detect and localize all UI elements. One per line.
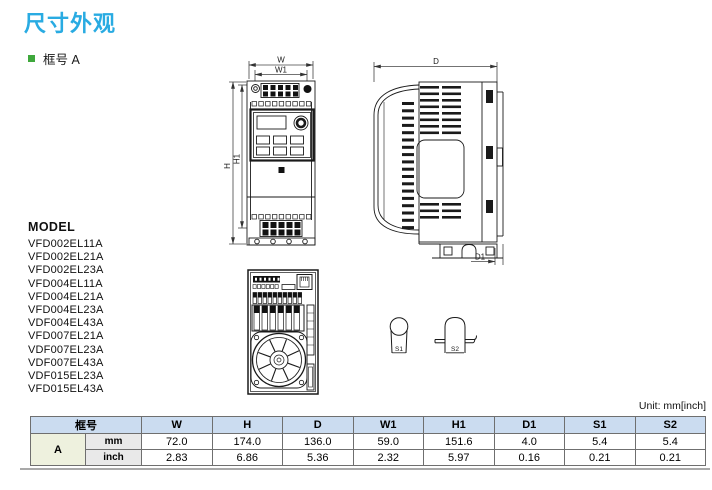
- dim-label-d: D: [433, 57, 439, 66]
- side-dimension-lines: [374, 62, 503, 265]
- dim-label-d1: D1: [475, 253, 486, 262]
- unit-cell-inch: inch: [86, 450, 142, 466]
- front-view-drawing: W W1 H H1: [190, 52, 360, 258]
- uncovered-unit-body: [248, 270, 318, 394]
- value-cell: 6.86: [212, 450, 283, 466]
- model-list-item: VDF004EL43A: [28, 317, 104, 330]
- dimensions-table: 框号 W H D W1 H1 D1 S1 S2 A mm 72.0 174.0 …: [30, 416, 706, 466]
- dim-label-w1: W1: [275, 66, 288, 75]
- model-list: MODEL VFD002EL11A VFD002EL21A VFD002EL23…: [28, 220, 104, 396]
- model-list-item: VFD004EL11A: [28, 278, 104, 291]
- model-list-item: VDF015EL23A: [28, 370, 104, 383]
- side-view-drawing: D D1: [362, 52, 512, 268]
- value-cell: 151.6: [424, 434, 495, 450]
- side-vent-slats: [402, 86, 493, 229]
- unit-cell-mm: mm: [86, 434, 142, 450]
- model-list-item: VFD002EL21A: [28, 251, 104, 264]
- model-list-item: VFD007EL21A: [28, 330, 104, 343]
- value-cell: 72.0: [142, 434, 213, 450]
- dim-label-h: H: [223, 163, 232, 169]
- value-cell: 4.0: [494, 434, 565, 450]
- model-list-heading: MODEL: [28, 220, 104, 234]
- col-header-h: H: [212, 417, 283, 434]
- value-cell: 136.0: [283, 434, 354, 450]
- value-cell: 0.21: [635, 450, 706, 466]
- model-list-item: VDF007EL43A: [28, 357, 104, 370]
- col-header-d: D: [283, 417, 354, 434]
- col-header-w: W: [142, 417, 213, 434]
- col-header-s1: S1: [565, 417, 636, 434]
- screw-label-s2: S2: [451, 346, 459, 353]
- value-cell: 2.32: [353, 450, 424, 466]
- table-row-mm: A mm 72.0 174.0 136.0 59.0 151.6 4.0 5.4…: [31, 434, 706, 450]
- col-header-frame: 框号: [31, 417, 142, 434]
- model-list-item: VDF007EL23A: [28, 344, 104, 357]
- value-cell: 0.16: [494, 450, 565, 466]
- table-bottom-rule: [20, 468, 710, 470]
- value-cell: 5.4: [565, 434, 636, 450]
- col-header-d1: D1: [494, 417, 565, 434]
- frame-section-label: 框号 A: [43, 49, 80, 68]
- model-list-item: VFD015EL43A: [28, 383, 104, 396]
- col-header-w1: W1: [353, 417, 424, 434]
- model-list-item: VFD002EL11A: [28, 238, 104, 251]
- value-cell: 174.0: [212, 434, 283, 450]
- side-unit-body: [374, 82, 503, 258]
- table-header-row: 框号 W H D W1 H1 D1 S1 S2: [31, 417, 706, 434]
- dim-label-w: W: [277, 56, 285, 65]
- model-list-item: VFD002EL23A: [28, 264, 104, 277]
- table-row-inch: inch 2.83 6.86 5.36 2.32 5.97 0.16 0.21 …: [31, 450, 706, 466]
- value-cell: 5.97: [424, 450, 495, 466]
- model-list-item: VFD004EL21A: [28, 291, 104, 304]
- screw-detail-drawing: S1 S2: [375, 308, 490, 360]
- uncovered-view-drawing: [246, 268, 324, 398]
- value-cell: 2.83: [142, 450, 213, 466]
- frame-section-heading: 框号 A: [28, 49, 80, 68]
- page-title: 尺寸外观: [24, 6, 116, 38]
- frame-cell: A: [31, 434, 86, 466]
- unit-note: Unit: mm[inch]: [500, 400, 706, 412]
- col-header-s2: S2: [635, 417, 706, 434]
- value-cell: 5.4: [635, 434, 706, 450]
- screw-label-s1: S1: [395, 346, 403, 353]
- value-cell: 0.21: [565, 450, 636, 466]
- model-list-item: VFD004EL23A: [28, 304, 104, 317]
- uncovered-black-details: [253, 276, 302, 313]
- value-cell: 5.36: [283, 450, 354, 466]
- front-unit-body: [247, 81, 315, 245]
- dim-label-h1: H1: [233, 153, 242, 164]
- bullet-square-icon: [28, 55, 35, 62]
- value-cell: 59.0: [353, 434, 424, 450]
- col-header-h1: H1: [424, 417, 495, 434]
